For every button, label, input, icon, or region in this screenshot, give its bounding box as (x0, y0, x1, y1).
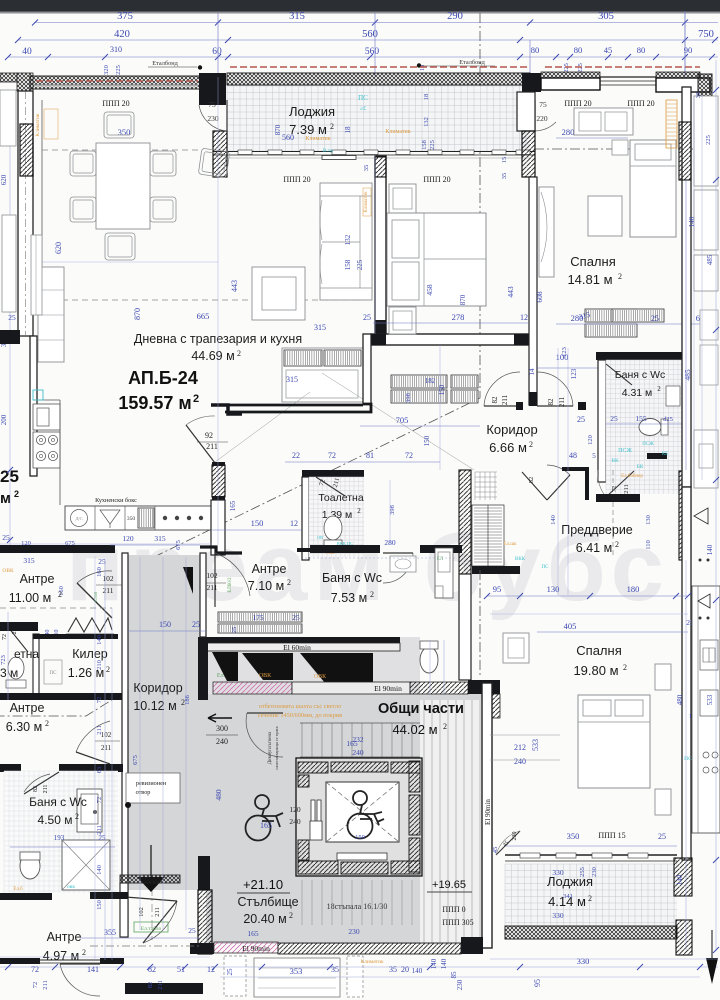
svg-text:2: 2 (657, 385, 661, 393)
svg-text:25: 25 (658, 832, 666, 841)
svg-text:82: 82 (528, 477, 535, 484)
svg-text:150: 150 (355, 834, 365, 841)
svg-text:25: 25 (651, 314, 659, 323)
svg-text:120: 120 (21, 540, 31, 547)
svg-text:130: 130 (547, 584, 560, 594)
svg-text:Антре: Антре (20, 572, 55, 586)
svg-text:165: 165 (229, 500, 237, 511)
svg-text:485: 485 (706, 254, 714, 265)
svg-text:211: 211 (157, 980, 164, 990)
svg-text:Коридор: Коридор (486, 422, 537, 437)
svg-text:овк: овк (67, 884, 75, 890)
svg-text:2: 2 (237, 349, 241, 358)
svg-text:Баня с Wc: Баня с Wc (322, 571, 382, 585)
svg-text:353: 353 (290, 966, 303, 976)
svg-text:Стълбище: Стълбище (237, 895, 298, 909)
svg-text:ВКК: ВКК (515, 557, 526, 562)
svg-text:620: 620 (0, 174, 8, 185)
svg-text:240: 240 (216, 737, 228, 746)
svg-text:отбетоновата шахта със светло: отбетоновата шахта със светло (259, 703, 341, 710)
svg-text:193: 193 (54, 834, 65, 842)
svg-text:870: 870 (133, 308, 142, 320)
svg-text:ПС: ПС (50, 671, 58, 676)
svg-text:м: м (0, 490, 11, 507)
svg-text:290: 290 (447, 11, 463, 22)
svg-text:отвор: отвор (136, 789, 151, 796)
svg-text:ПСЖ: ПСЖ (642, 442, 654, 447)
svg-text:БК: БК (637, 464, 644, 470)
svg-text:300: 300 (216, 724, 228, 733)
svg-text:225: 225 (563, 63, 570, 73)
svg-text:25: 25 (188, 926, 196, 935)
svg-text:85: 85 (450, 971, 458, 979)
svg-text:El 90min: El 90min (374, 684, 402, 693)
svg-text:6.41 м: 6.41 м (576, 541, 612, 555)
svg-text:72: 72 (328, 451, 336, 460)
svg-text:ПС: ПС (358, 94, 368, 102)
svg-text:АП.Б-24: АП.Б-24 (128, 368, 198, 388)
svg-text:80: 80 (531, 45, 540, 55)
svg-text:+21.10: +21.10 (243, 877, 283, 892)
svg-text:211: 211 (501, 394, 509, 405)
svg-text:ЕЛ60: ЕЛ60 (93, 591, 98, 602)
svg-text:35: 35 (695, 92, 702, 99)
svg-text:20: 20 (401, 965, 409, 974)
svg-text:665: 665 (197, 311, 210, 321)
svg-text:14: 14 (528, 368, 536, 376)
svg-text:165: 165 (247, 929, 259, 938)
svg-text:≥£: ≥£ (360, 106, 366, 112)
svg-text:75: 75 (539, 100, 547, 109)
svg-text:2: 2 (330, 122, 334, 131)
svg-text:110: 110 (645, 540, 652, 550)
svg-text:230: 230 (512, 832, 518, 841)
svg-text:255: 255 (579, 867, 586, 877)
svg-text:225: 225 (705, 135, 712, 145)
svg-text:25: 25 (610, 414, 618, 423)
svg-text:150: 150 (96, 900, 103, 910)
svg-text:25: 25 (292, 613, 300, 622)
svg-text:82: 82 (491, 396, 499, 404)
svg-text:5: 5 (592, 452, 596, 460)
svg-text:ОВК: ОВК (2, 568, 14, 574)
svg-text:35: 35 (501, 173, 508, 180)
svg-text:132: 132 (344, 234, 352, 245)
svg-text:120: 120 (587, 435, 594, 445)
svg-text:КБ: КБ (662, 452, 668, 457)
svg-text:Д/С: Д/С (75, 516, 82, 521)
svg-text:330: 330 (577, 956, 590, 966)
svg-text:240: 240 (352, 748, 364, 757)
svg-text:240: 240 (514, 757, 526, 766)
svg-text:25: 25 (226, 968, 234, 976)
svg-text:81: 81 (366, 451, 374, 460)
svg-text:120: 120 (289, 805, 301, 814)
svg-text:350: 350 (118, 127, 131, 137)
svg-text:350: 350 (567, 831, 580, 841)
svg-text:Ел.табло: Ел.табло (141, 925, 162, 932)
svg-text:ОВК: ОВК (259, 673, 272, 679)
svg-text:Баня с Wc: Баня с Wc (615, 369, 665, 381)
svg-text:2: 2 (289, 911, 293, 920)
svg-text:20.40 м: 20.40 м (243, 912, 286, 926)
svg-text:140: 140 (412, 967, 423, 975)
svg-text:ППП 305: ППП 305 (442, 918, 473, 927)
svg-text:211: 211 (558, 396, 566, 407)
svg-text:230: 230 (348, 927, 360, 936)
svg-text:25: 25 (2, 533, 10, 542)
svg-text:211: 211 (96, 825, 103, 835)
svg-text:132: 132 (423, 117, 430, 127)
svg-text:560: 560 (365, 47, 380, 57)
svg-text:72: 72 (2, 634, 8, 640)
svg-text:443: 443 (506, 286, 515, 298)
svg-text:350: 350 (127, 516, 136, 522)
svg-text:2: 2 (75, 812, 79, 821)
svg-text:95: 95 (533, 979, 542, 987)
svg-text:870: 870 (459, 294, 467, 305)
svg-text:211: 211 (206, 442, 218, 451)
svg-text:Общи части: Общи части (378, 701, 464, 717)
svg-text:123: 123 (561, 347, 568, 357)
svg-text:140: 140 (688, 216, 696, 227)
svg-text:Еталбонд: Еталбонд (459, 59, 485, 66)
svg-text:315: 315 (154, 534, 166, 543)
svg-text:608: 608 (535, 291, 544, 303)
svg-text:12: 12 (290, 519, 298, 528)
svg-text:ПСЖ: ПСЖ (618, 448, 632, 454)
svg-text:220: 220 (536, 114, 548, 123)
svg-text:2: 2 (588, 894, 592, 903)
svg-text:723: 723 (0, 655, 7, 665)
svg-text:560: 560 (282, 133, 294, 142)
svg-text:Килер: Килер (72, 647, 108, 661)
svg-text:159.57 м: 159.57 м (118, 393, 191, 413)
svg-text:25: 25 (231, 627, 238, 634)
svg-text:230: 230 (207, 114, 219, 123)
svg-text:25: 25 (363, 313, 371, 322)
svg-text:4.50 м: 4.50 м (38, 813, 73, 827)
svg-text:140: 140 (440, 958, 448, 969)
svg-text:ППП 20: ППП 20 (564, 99, 591, 108)
svg-text:140: 140 (706, 544, 714, 555)
svg-text:150: 150 (423, 435, 431, 446)
svg-text:155: 155 (635, 414, 647, 423)
svg-text:Климатик: Климатик (385, 129, 410, 135)
svg-text:200: 200 (0, 414, 8, 425)
svg-text:82: 82 (148, 965, 156, 974)
svg-text:315: 315 (23, 556, 35, 565)
svg-text:140: 140 (96, 865, 103, 875)
svg-text:6.30 м: 6.30 м (6, 720, 42, 734)
svg-text:458: 458 (425, 284, 434, 296)
svg-text:Еталбонд: Еталбонд (152, 60, 178, 67)
svg-text:48: 48 (569, 451, 577, 460)
svg-text:22: 22 (292, 451, 300, 460)
svg-text:ревизионен: ревизионен (136, 780, 167, 787)
svg-text:315: 315 (314, 323, 326, 332)
svg-text:2: 2 (443, 722, 447, 731)
svg-text:Ел.бойлер: Ел.бойлер (621, 474, 643, 479)
svg-text:2: 2 (45, 719, 49, 728)
svg-text:44.69 м: 44.69 м (191, 349, 234, 363)
svg-text:330: 330 (552, 911, 564, 920)
svg-text:675: 675 (132, 755, 139, 765)
svg-text:Антре: Антре (10, 701, 45, 715)
svg-text:2: 2 (529, 440, 533, 449)
svg-text:230: 230 (456, 979, 464, 990)
svg-text:211: 211 (42, 980, 49, 990)
svg-text:Ел.шк: Ел.шк (503, 542, 517, 547)
svg-text:480: 480 (676, 694, 684, 705)
svg-text:130: 130 (645, 515, 652, 525)
svg-text:320: 320 (103, 65, 110, 75)
svg-text:278: 278 (452, 312, 465, 322)
svg-text:Ел.б: Ел.б (13, 887, 23, 892)
svg-text:2: 2 (106, 665, 110, 674)
svg-text:7.53 м: 7.53 м (331, 591, 367, 605)
svg-text:82: 82 (547, 398, 555, 406)
svg-text:ППП 0: ППП 0 (442, 905, 465, 914)
svg-text:Ел.: Ел. (217, 673, 226, 679)
svg-text:140: 140 (96, 635, 103, 645)
svg-text:Климатик: Климатик (35, 113, 41, 136)
svg-text:158: 158 (421, 140, 428, 150)
svg-text:етна: етна (14, 647, 39, 661)
svg-text:d25: d25 (663, 416, 673, 423)
svg-text:160: 160 (96, 567, 103, 577)
svg-text:675: 675 (65, 540, 75, 547)
svg-text:398: 398 (405, 393, 412, 403)
svg-text:750: 750 (698, 29, 714, 40)
svg-text:150: 150 (251, 518, 264, 528)
svg-text:240: 240 (289, 817, 301, 826)
svg-text:180: 180 (627, 584, 640, 594)
svg-text:72: 72 (31, 965, 39, 974)
svg-text:44.02 м: 44.02 м (392, 722, 437, 737)
svg-text:2: 2 (370, 590, 374, 599)
svg-text:18: 18 (423, 94, 430, 101)
svg-text:15: 15 (501, 157, 508, 164)
svg-text:35: 35 (389, 965, 397, 974)
svg-text:7.10 м: 7.10 м (248, 579, 284, 593)
svg-text:443: 443 (230, 280, 239, 292)
svg-text:Коридор: Коридор (133, 681, 182, 695)
svg-text:В.тр: В.тр (323, 148, 334, 154)
svg-text:12: 12 (520, 313, 528, 322)
svg-text:Димоуплътнена: Димоуплътнена (268, 731, 273, 764)
svg-text:Антре: Антре (47, 930, 82, 944)
svg-text:ППП 20: ППП 20 (423, 175, 450, 184)
svg-text:2: 2 (615, 540, 619, 549)
svg-text:2: 2 (287, 578, 291, 587)
svg-text:158: 158 (344, 259, 352, 270)
svg-text:72: 72 (32, 982, 39, 989)
svg-text:211: 211 (207, 583, 218, 592)
svg-text:82: 82 (147, 982, 154, 989)
svg-text:2: 2 (618, 272, 622, 281)
svg-text:Лоджия: Лоджия (289, 104, 335, 119)
svg-text:141: 141 (87, 965, 99, 974)
svg-text:35: 35 (363, 165, 370, 172)
svg-text:186: 186 (184, 694, 191, 705)
svg-text:25: 25 (8, 313, 16, 322)
svg-text:211: 211 (96, 725, 103, 735)
svg-text:175: 175 (252, 613, 264, 622)
svg-text:705: 705 (396, 415, 409, 425)
svg-text:4.31 м: 4.31 м (622, 387, 653, 399)
svg-text:92: 92 (205, 431, 213, 440)
svg-text:355: 355 (104, 928, 116, 937)
svg-text:102: 102 (138, 907, 145, 917)
svg-text:2: 2 (357, 507, 361, 515)
svg-text:280: 280 (562, 127, 575, 137)
svg-text:19.80 м: 19.80 м (573, 663, 618, 678)
svg-text:Спалня: Спалня (576, 643, 621, 658)
svg-text:420: 420 (114, 29, 130, 40)
svg-text:ЕЛ60/2: ЕЛ60/2 (228, 577, 233, 593)
svg-text:ППП 20: ППП 20 (627, 99, 654, 108)
svg-text:+19.65: +19.65 (432, 879, 466, 891)
svg-text:14.81 м: 14.81 м (567, 272, 612, 287)
svg-text:Баня с Wc: Баня с Wc (29, 795, 87, 809)
svg-text:75: 75 (208, 100, 216, 109)
svg-text:Кухненски бокс: Кухненски бокс (95, 497, 137, 504)
svg-text:Тоалетна: Тоалетна (318, 492, 363, 504)
svg-text:Климатик: Климатик (305, 136, 330, 142)
svg-text:12: 12 (207, 965, 215, 974)
svg-text:2: 2 (14, 489, 19, 499)
svg-text:330: 330 (552, 868, 564, 877)
svg-text:405: 405 (564, 621, 577, 631)
svg-text:3 м: 3 м (0, 666, 18, 680)
svg-text:82: 82 (33, 786, 39, 792)
svg-text:72: 72 (96, 797, 103, 804)
svg-text:45: 45 (604, 45, 613, 55)
svg-text:6.66 м: 6.66 м (489, 440, 527, 455)
svg-text:51: 51 (177, 965, 185, 974)
svg-text:165: 165 (260, 821, 272, 830)
svg-text:102: 102 (102, 574, 114, 583)
svg-text:150: 150 (438, 384, 446, 395)
svg-text:72: 72 (405, 451, 413, 460)
svg-text:182: 182 (425, 377, 436, 385)
svg-text:El 90min: El 90min (484, 799, 492, 825)
svg-text:самозатваряща се врата: самозатваряща се врата (274, 726, 279, 769)
svg-text:Климатик: Климатик (360, 959, 383, 965)
svg-text:398: 398 (389, 505, 396, 515)
svg-text:Антре: Антре (252, 562, 287, 576)
svg-text:230: 230 (591, 867, 598, 877)
svg-text:620: 620 (54, 242, 63, 254)
svg-text:150: 150 (159, 620, 171, 629)
svg-text:120: 120 (122, 534, 134, 543)
svg-text:211: 211 (43, 785, 49, 794)
svg-text:305: 305 (598, 11, 614, 22)
svg-text:ПС: ПС (684, 756, 692, 762)
svg-text:18стъпала 16.1/30: 18стъпала 16.1/30 (327, 902, 388, 911)
svg-text:95: 95 (493, 584, 502, 594)
svg-text:ОВК: ОВК (314, 674, 327, 680)
svg-text:7.39 м: 7.39 м (289, 122, 327, 137)
svg-text:11.00 м: 11.00 м (9, 591, 51, 605)
svg-text:ОВ: ОВ (317, 535, 323, 540)
svg-text:25: 25 (577, 415, 585, 424)
svg-text:140: 140 (550, 515, 557, 525)
svg-text:72: 72 (96, 697, 103, 704)
svg-text:El 90min: El 90min (242, 944, 270, 953)
svg-text:35: 35 (331, 965, 339, 974)
svg-text:2: 2 (58, 590, 62, 599)
svg-text:40: 40 (22, 47, 32, 57)
svg-text:225: 225 (115, 65, 122, 75)
svg-text:560: 560 (362, 29, 378, 40)
svg-text:2: 2 (82, 948, 86, 957)
svg-text:80: 80 (574, 45, 583, 55)
svg-text:210: 210 (96, 660, 103, 670)
svg-text:80: 80 (637, 45, 646, 55)
svg-text:310: 310 (110, 45, 122, 54)
svg-text:533: 533 (531, 739, 540, 751)
svg-text:375: 375 (117, 11, 133, 22)
svg-text:140: 140 (430, 958, 438, 969)
svg-text:Преддверие: Преддверие (561, 523, 633, 537)
svg-text:870: 870 (274, 124, 282, 135)
svg-text:63: 63 (96, 767, 103, 774)
svg-text:123: 123 (570, 368, 578, 379)
svg-text:ППП 15: ППП 15 (598, 831, 625, 840)
svg-text:140: 140 (676, 874, 684, 885)
svg-text:225: 225 (577, 63, 584, 73)
svg-text:72: 72 (611, 486, 618, 493)
svg-text:2: 2 (193, 393, 199, 405)
svg-text:315: 315 (289, 11, 305, 22)
svg-text:ВК: ВК (611, 458, 619, 464)
svg-text:211: 211 (101, 744, 112, 752)
svg-text:ППП 20: ППП 20 (283, 175, 310, 184)
svg-text:485: 485 (683, 369, 692, 381)
svg-text:2: 2 (623, 663, 627, 672)
svg-text:225: 225 (429, 140, 436, 150)
svg-text:4.97 м: 4.97 м (43, 949, 79, 963)
svg-text:211: 211 (154, 907, 161, 917)
svg-text:165: 165 (346, 739, 358, 748)
svg-text:25: 25 (192, 620, 200, 629)
svg-text:ППП 20: ППП 20 (102, 99, 129, 108)
svg-text:315: 315 (286, 375, 298, 384)
svg-text:533: 533 (706, 694, 714, 705)
svg-text:225: 225 (356, 259, 364, 270)
svg-text:Климатик: Климатик (364, 191, 369, 213)
svg-text:211: 211 (623, 484, 630, 494)
svg-text:Спалня: Спалня (570, 254, 615, 269)
svg-text:341: 341 (563, 893, 573, 900)
svg-text:480: 480 (214, 789, 223, 801)
svg-text:El 60min: El 60min (283, 643, 311, 652)
svg-text:18: 18 (344, 126, 352, 134)
svg-text:102: 102 (206, 571, 218, 580)
svg-text:211: 211 (103, 586, 114, 595)
svg-text:60: 60 (212, 47, 222, 57)
svg-text:ПС: ПС (542, 565, 550, 570)
svg-text:212: 212 (514, 743, 526, 752)
